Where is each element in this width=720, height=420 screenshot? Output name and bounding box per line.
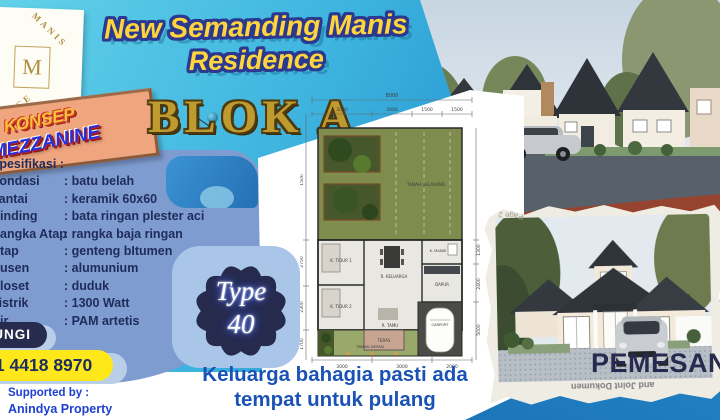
dining-table <box>384 246 400 268</box>
dim: 2400 <box>476 278 482 290</box>
dim: 5000 <box>476 324 482 336</box>
room-label: K. TIDUR 1 <box>330 258 352 263</box>
spec-value: batu belah <box>64 173 134 190</box>
spec-row: Atapgenteng bItumen <box>0 243 204 260</box>
logo-arc-text: MANIS <box>30 11 69 49</box>
spec-row: Rangka Ataprangka baja ringan <box>0 226 204 243</box>
spec-label: Pondasi <box>0 173 64 190</box>
toilet <box>448 244 457 255</box>
spec-row: Pondasibatu belah <box>0 173 204 190</box>
spec-label: Listrik <box>0 295 64 312</box>
flyer-root: MANIS M CE KONSEP MEZZANINE New Semandin… <box>0 0 720 420</box>
spec-value: PAM artetis <box>64 313 139 330</box>
dim: 1700 <box>300 338 305 350</box>
wave-curl-shape <box>200 186 234 208</box>
spec-label: Dinding <box>0 208 64 225</box>
dim: 2300 <box>300 301 305 313</box>
type-badge-text: Type 40 <box>188 258 294 364</box>
tagline-line1: Keluarga bahagia pasti ada <box>150 362 520 387</box>
room-label: TAMAN DEPAN <box>355 344 384 349</box>
spec-value: bata ringan plester aci <box>64 208 204 225</box>
dim-total: 8000 <box>386 93 399 99</box>
spec-row: Lantaikeramik 60x60 <box>0 191 204 208</box>
back-yard-area: TANAH BELAKANG <box>318 128 462 240</box>
bed-furniture <box>322 289 340 317</box>
logo-monogram: M <box>13 46 50 89</box>
paper-back-text: and Joint Dokumen <box>528 379 698 393</box>
dim: 1500 <box>421 107 433 113</box>
type-number: 40 <box>188 309 294 340</box>
room-label: K. TIDUR 2 <box>330 304 352 309</box>
spec-label: Lantai <box>0 191 64 208</box>
car-top-view <box>426 308 454 352</box>
room-label: R. KELUARGA <box>381 274 408 279</box>
room-label: TANAH BELAKANG <box>406 182 445 187</box>
title-line2: Residence <box>100 41 413 78</box>
room-label: DAPUR <box>435 282 449 287</box>
tagline: Keluarga bahagia pasti ada tempat untuk … <box>150 362 520 412</box>
spec-value: rangka baja ringan <box>64 226 183 243</box>
supported-by-label: Supported by : <box>8 387 89 399</box>
spec-label: Kusen <box>0 260 64 277</box>
main-title: New Semanding Manis Residence <box>99 7 412 78</box>
spec-label: Closet <box>0 278 64 295</box>
dim: 2000 <box>386 107 398 113</box>
room-label: CARPORT <box>432 323 450 327</box>
dim: 1500 <box>300 174 305 186</box>
room-label: K. MANDI <box>430 249 447 253</box>
spec-value: genteng bItumen <box>64 243 172 260</box>
spec-value: duduk <box>64 278 109 295</box>
type-word: Type <box>188 276 294 307</box>
order-caption: PEMESANAN <box>591 348 720 379</box>
room-label: R. TAMU <box>382 323 399 328</box>
dim: 3000 <box>336 107 348 113</box>
spec-heading: Spesifikasi : <box>0 156 204 173</box>
kitchen-counter <box>424 266 460 274</box>
room-label: TERAS <box>377 338 391 343</box>
phone-number: 0821 4418 8970 <box>0 350 113 381</box>
agency-name: Anindya Property <box>8 402 112 416</box>
spec-value: 1300 Watt <box>64 295 130 312</box>
contact-badge: HUBUNGI <box>0 322 47 348</box>
dim: 2750 <box>300 256 305 268</box>
title-line1: New Semanding Manis <box>99 7 412 46</box>
spec-row: Dindingbata ringan plester aci <box>0 208 204 225</box>
spec-label: Atap <box>0 243 64 260</box>
spec-label: Rangka Atap <box>0 226 64 243</box>
spec-value: alumunium <box>64 260 138 277</box>
dim: 1500 <box>451 107 463 113</box>
spec-value: keramik 60x60 <box>64 191 157 208</box>
dim: 1300 <box>476 244 482 256</box>
tagline-line2: tempat untuk pulang <box>150 387 520 412</box>
rug <box>378 308 398 320</box>
